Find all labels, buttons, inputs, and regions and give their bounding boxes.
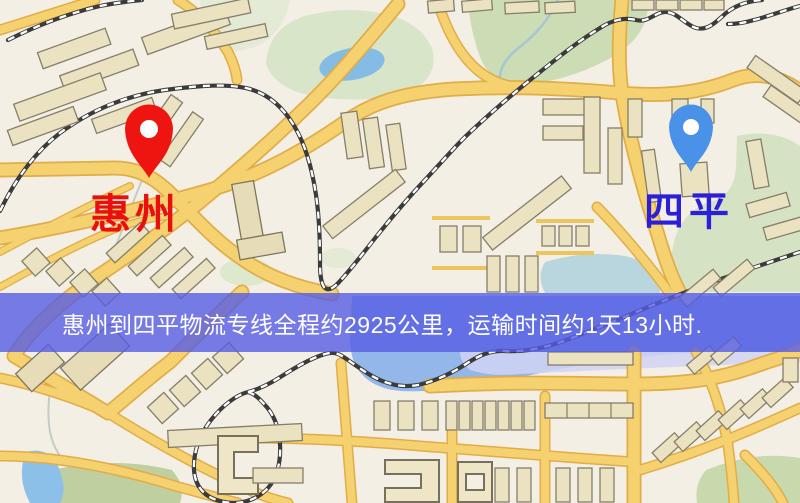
destination-city-label: 四平 (644, 179, 734, 237)
route-info-banner: 惠州到四平物流专线全程约2925公里，运输时间约1天13小时. (0, 293, 800, 352)
map-canvas (0, 0, 800, 503)
origin-city-label: 惠州 (90, 180, 180, 240)
route-info-text: 惠州到四平物流专线全程约2925公里，运输时间约1天13小时. (62, 306, 702, 340)
logistics-route-map: 惠州 四平 惠州到四平物流专线全程约2925公里，运输时间约1天13小时. (0, 0, 800, 503)
